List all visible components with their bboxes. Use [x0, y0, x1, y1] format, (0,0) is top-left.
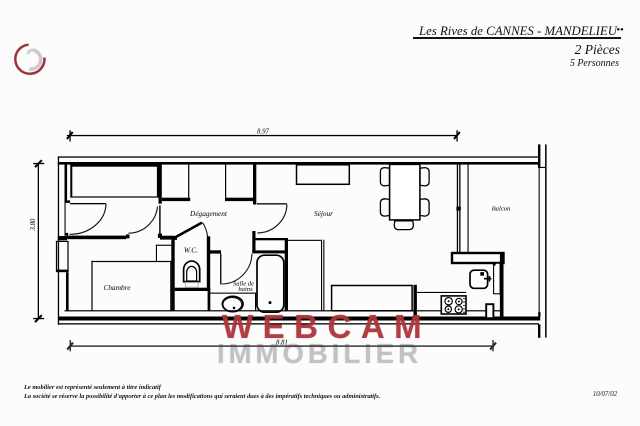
svg-text:8.81: 8.81 — [276, 340, 288, 347]
